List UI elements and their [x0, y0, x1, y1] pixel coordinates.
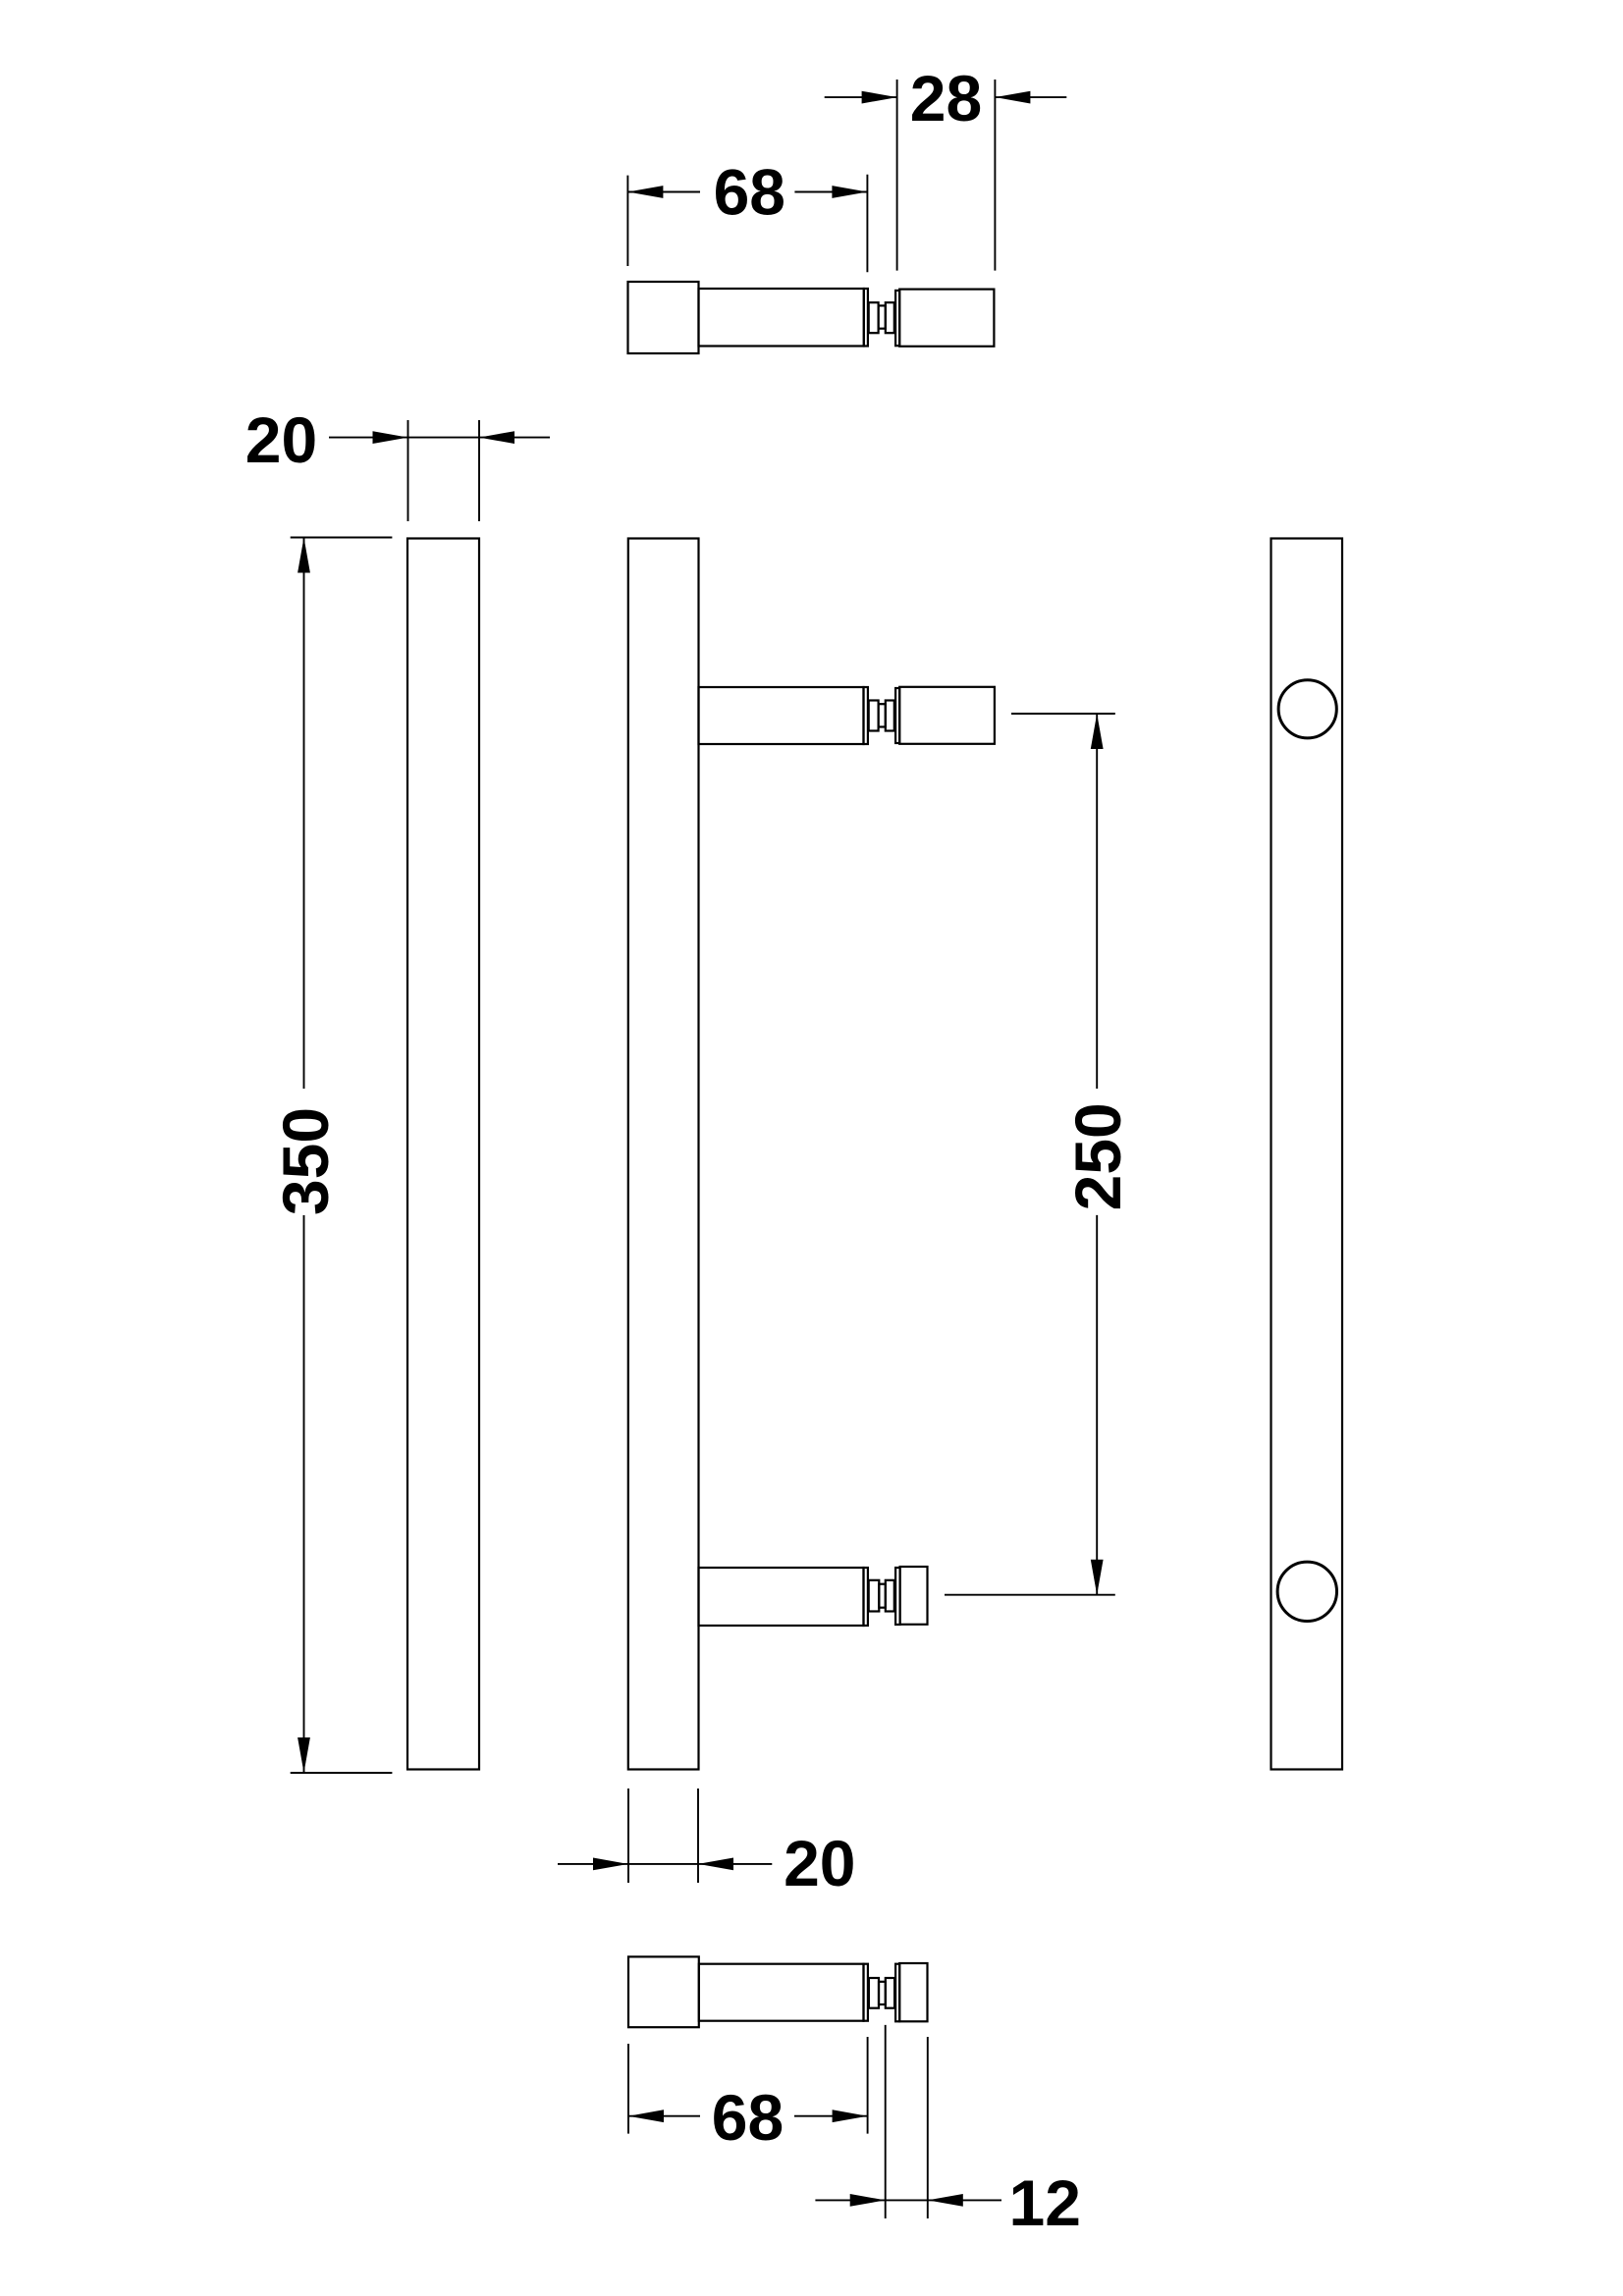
svg-text:12: 12 — [1008, 2166, 1080, 2239]
svg-text:68: 68 — [714, 156, 785, 229]
svg-text:250: 250 — [1061, 1102, 1134, 1210]
svg-text:350: 350 — [269, 1107, 342, 1215]
svg-text:68: 68 — [712, 2081, 784, 2154]
svg-text:20: 20 — [245, 403, 317, 476]
svg-text:28: 28 — [910, 62, 982, 134]
svg-text:20: 20 — [784, 1827, 855, 1899]
